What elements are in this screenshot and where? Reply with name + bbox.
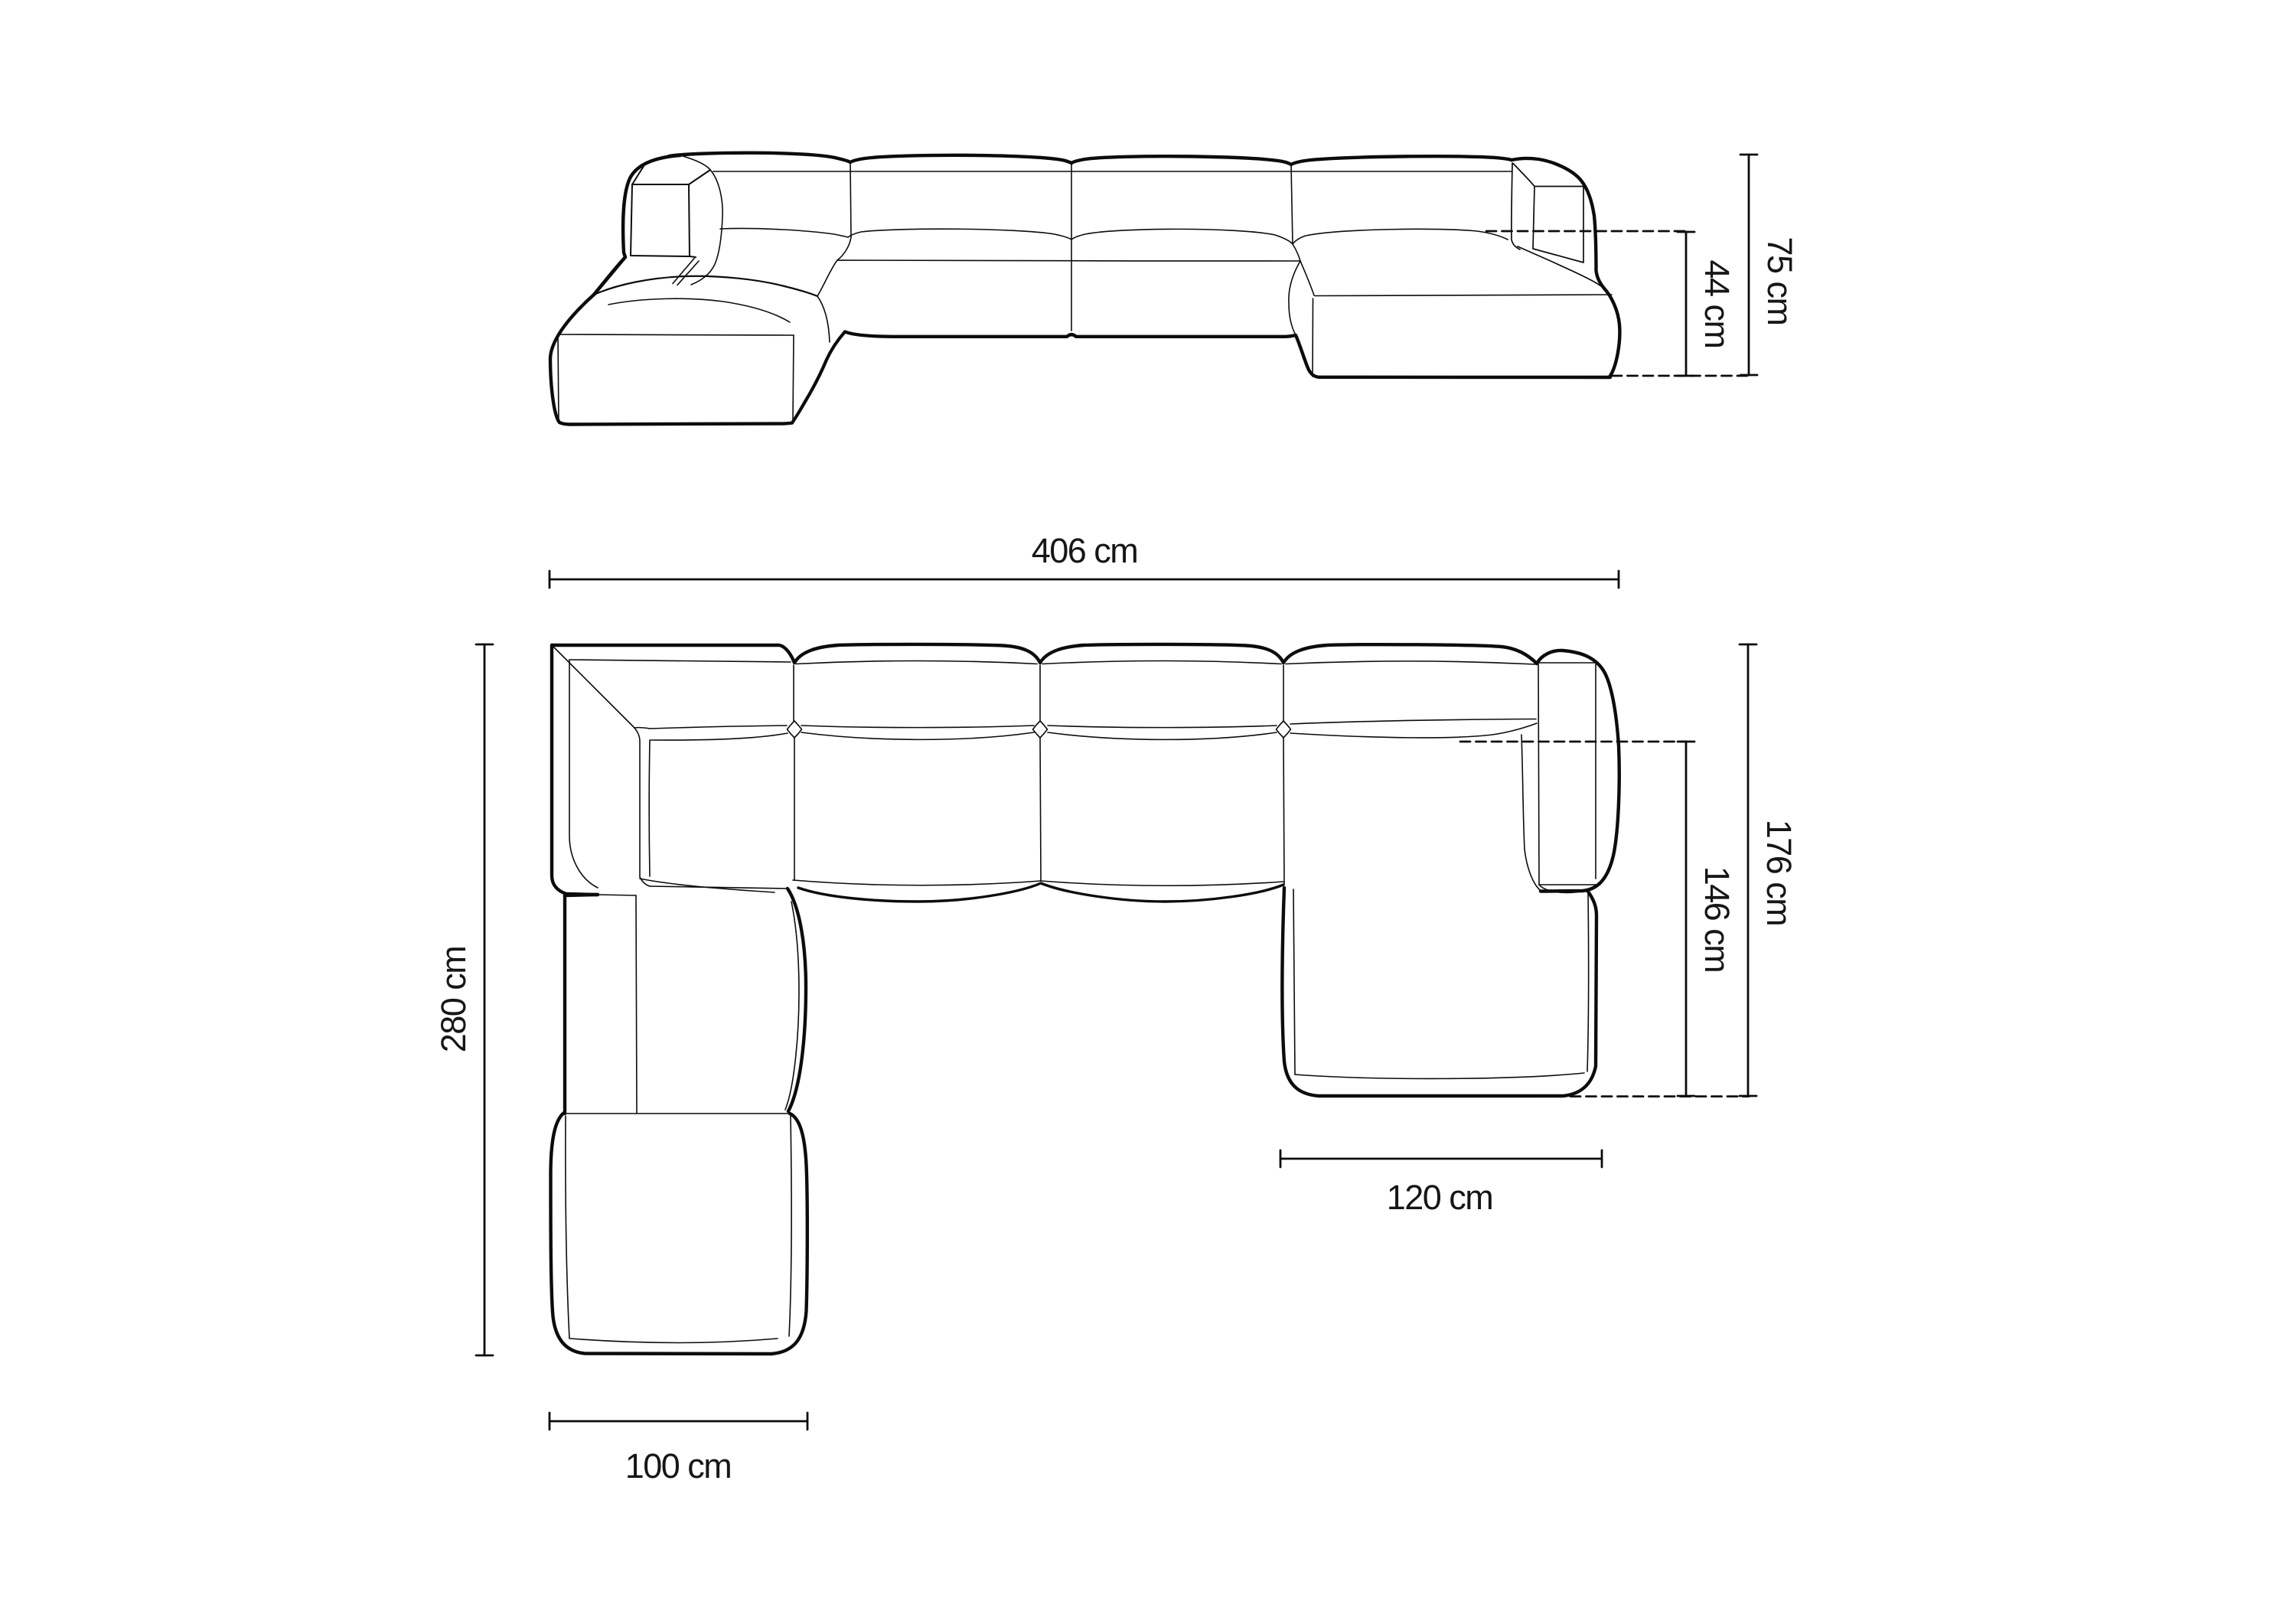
svg-text:146 cm: 146 cm — [1698, 866, 1737, 973]
svg-text:406 cm: 406 cm — [1032, 531, 1138, 570]
svg-text:176 cm: 176 cm — [1760, 820, 1799, 926]
svg-text:44 cm: 44 cm — [1698, 259, 1737, 347]
svg-text:100 cm: 100 cm — [625, 1446, 732, 1485]
svg-text:120 cm: 120 cm — [1387, 1178, 1493, 1217]
svg-text:280 cm: 280 cm — [434, 947, 473, 1053]
svg-text:75 cm: 75 cm — [1760, 236, 1799, 324]
